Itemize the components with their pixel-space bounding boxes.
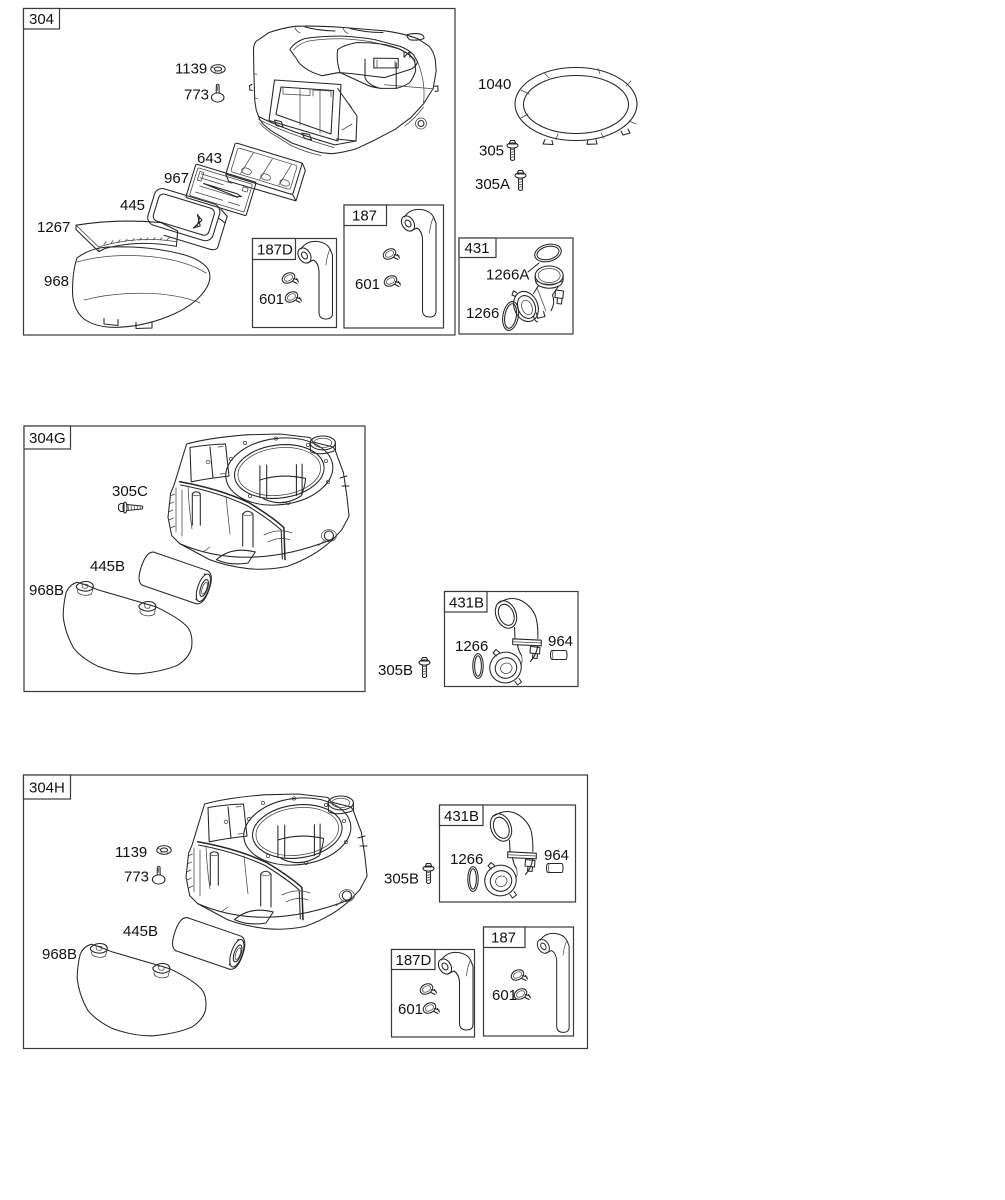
svg-text:187: 187 (491, 930, 516, 947)
svg-text:304G: 304G (29, 430, 66, 447)
svg-text:187D: 187D (257, 242, 293, 259)
svg-text:1266: 1266 (455, 638, 488, 655)
svg-text:445B: 445B (90, 558, 125, 575)
svg-text:964: 964 (544, 847, 569, 864)
svg-text:304H: 304H (29, 780, 65, 797)
svg-text:968: 968 (44, 273, 69, 290)
svg-text:305C: 305C (112, 483, 148, 500)
svg-text:305: 305 (479, 143, 504, 160)
svg-text:187: 187 (352, 208, 377, 225)
svg-text:1266: 1266 (466, 305, 499, 322)
svg-text:1266: 1266 (450, 851, 483, 868)
svg-text:1139: 1139 (175, 61, 207, 78)
svg-text:445B: 445B (123, 923, 158, 940)
svg-text:601: 601 (492, 987, 517, 1004)
svg-text:964: 964 (548, 633, 573, 650)
svg-text:431B: 431B (449, 595, 484, 612)
svg-text:431B: 431B (444, 808, 479, 825)
svg-text:601: 601 (398, 1001, 423, 1018)
svg-text:431: 431 (465, 240, 490, 257)
svg-text:601: 601 (259, 291, 284, 308)
svg-text:305A: 305A (475, 176, 510, 193)
svg-text:304: 304 (29, 11, 54, 28)
svg-text:773: 773 (124, 869, 149, 886)
svg-text:968B: 968B (29, 582, 64, 599)
svg-text:187D: 187D (396, 952, 432, 969)
svg-text:445: 445 (120, 197, 145, 214)
svg-text:968B: 968B (42, 946, 77, 963)
svg-text:773: 773 (184, 87, 209, 104)
svg-text:1139: 1139 (115, 844, 147, 861)
svg-text:1266A: 1266A (486, 267, 529, 284)
svg-text:601: 601 (355, 276, 380, 293)
svg-text:967: 967 (164, 170, 189, 187)
svg-text:643: 643 (197, 150, 222, 167)
svg-text:305B: 305B (384, 871, 419, 888)
svg-text:305B: 305B (378, 662, 413, 679)
svg-text:1267: 1267 (37, 219, 70, 236)
svg-text:1040: 1040 (478, 76, 511, 93)
